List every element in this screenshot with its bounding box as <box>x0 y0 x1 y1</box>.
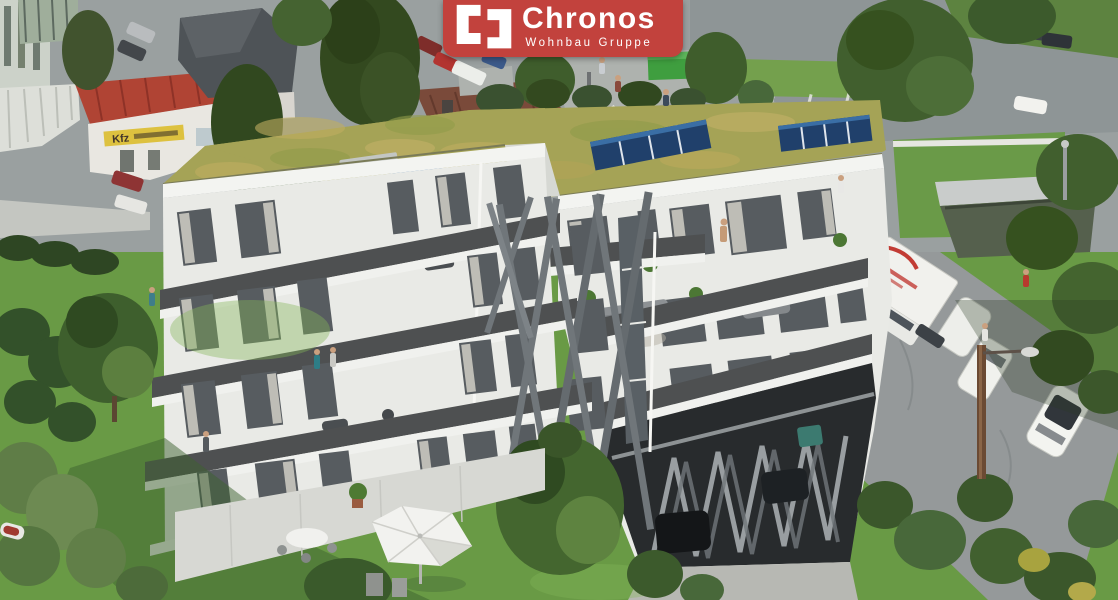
patio-chair <box>277 545 287 555</box>
potted-plant <box>349 483 367 501</box>
lamp-arm <box>983 351 1024 353</box>
waste-bin <box>797 424 824 447</box>
person-penthouse <box>720 219 728 243</box>
person <box>663 89 669 106</box>
terrace-plant <box>833 233 847 247</box>
parasol-shadow <box>402 576 466 592</box>
person-balcony <box>330 347 336 367</box>
person-balcony <box>203 431 209 452</box>
aerial-rendering: Kfz <box>0 0 1118 600</box>
logo-subtitle: Wohnbau Gruppe <box>525 38 652 50</box>
person <box>615 75 621 92</box>
logo-badge: Chronos Wohnbau Gruppe <box>443 0 683 57</box>
person <box>838 175 844 193</box>
person <box>982 323 988 341</box>
planter-box <box>366 573 383 596</box>
person-balcony <box>149 287 155 306</box>
plant-pot <box>352 499 363 508</box>
logo-brand: Chronos <box>522 4 656 34</box>
parked-car <box>654 510 711 555</box>
parked-car <box>760 467 810 504</box>
patio-chair <box>327 543 337 553</box>
person <box>1023 269 1029 287</box>
kfz-sign-text: Kfz <box>112 132 131 145</box>
planter-box <box>392 578 407 597</box>
person-balcony <box>314 349 320 369</box>
tree-bottom <box>627 550 683 598</box>
rendering-stage: Kfz <box>0 0 1118 600</box>
person <box>599 57 605 74</box>
tree <box>62 10 114 90</box>
brackets-icon <box>455 4 513 50</box>
light-pole <box>1063 146 1067 200</box>
patio-table <box>286 528 328 548</box>
lawn-highlight <box>170 300 330 360</box>
street-lamp <box>1021 347 1039 357</box>
logo-text-block: Chronos Wohnbau Gruppe <box>522 4 656 50</box>
patio-chair <box>301 553 311 563</box>
